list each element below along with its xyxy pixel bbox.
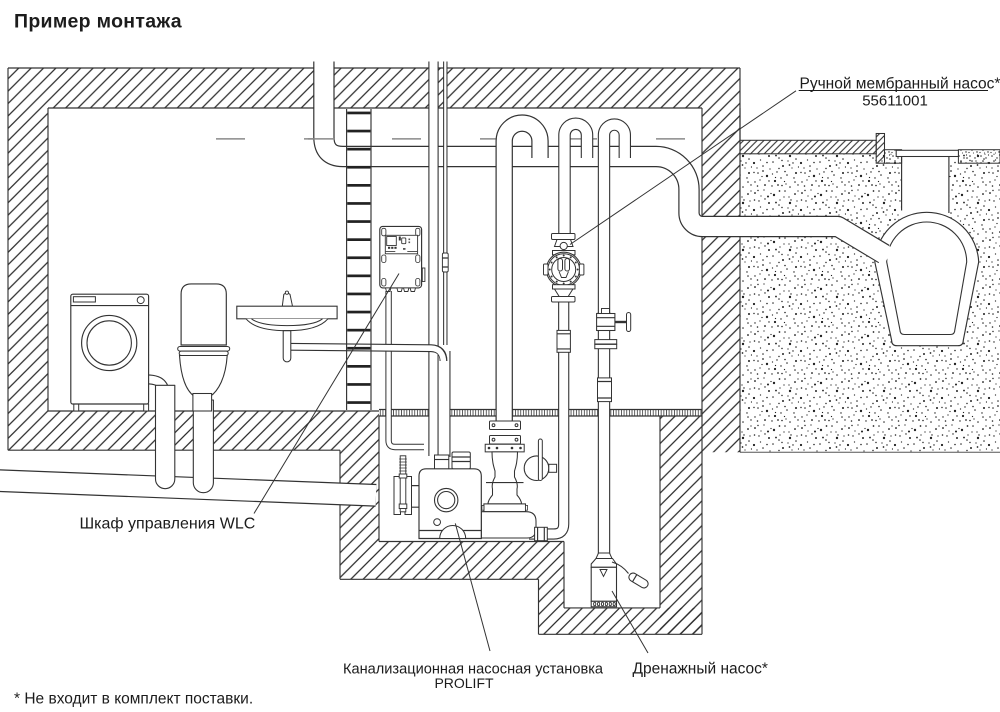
svg-text:Шкаф управления WLC: Шкаф управления WLC (80, 516, 256, 533)
svg-text:Пример монтажа: Пример монтажа (14, 11, 182, 33)
svg-text:Дренажный насос*: Дренажный насос* (633, 661, 768, 678)
svg-text:* Не входит в комплект поставк: * Не входит в комплект поставки. (14, 691, 253, 708)
svg-text:Ручной мембранный насос*: Ручной мембранный насос* (800, 75, 1000, 92)
svg-text:55611001: 55611001 (862, 93, 928, 110)
svg-text:PROLIFT: PROLIFT (434, 675, 494, 691)
